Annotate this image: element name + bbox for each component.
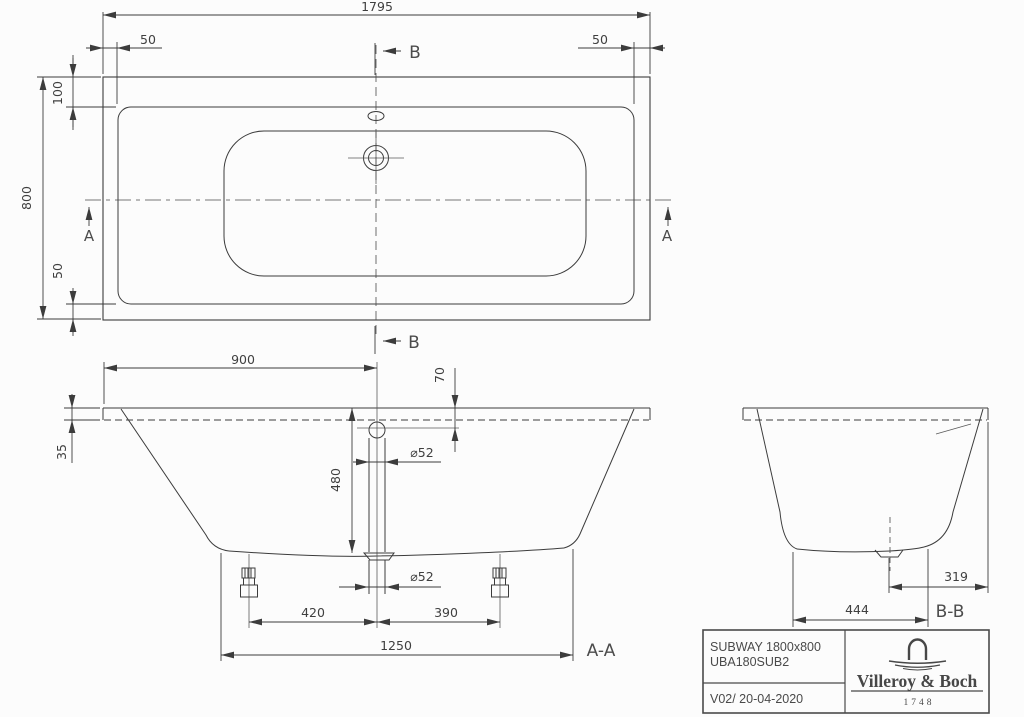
dim-overflow-depth-group: 70 — [432, 367, 455, 452]
dim-left-inset-group: 50 — [86, 32, 162, 104]
dim-overall-width: 800 — [19, 186, 34, 210]
dim-drain-center-to-edge: 319 — [944, 569, 968, 584]
section-aa-view: 900 70 480 ⌀52 35 — [54, 352, 650, 661]
section-marker-a-right: A — [662, 227, 673, 245]
tub-bottom — [229, 548, 564, 556]
article-number: UBA180SUB2 — [710, 655, 789, 669]
dim-left-foot-to-drain: 420 — [301, 605, 325, 620]
dim-right-inset: 50 — [592, 32, 608, 47]
section-label-aa: A-A — [587, 641, 616, 661]
dim-base-length: 1250 — [380, 638, 412, 653]
section-marker-b-bottom: B — [408, 333, 420, 353]
top-view-outline — [85, 45, 674, 338]
dim-right-inset-group: 50 — [578, 32, 665, 104]
dim-overflow-dia-group: ⌀52 — [353, 445, 441, 462]
section-label-bb: B-B — [936, 602, 965, 622]
dim-bottom-inset-group: 50 — [50, 263, 116, 336]
revision-date: V02/ 20-04-2020 — [710, 692, 803, 706]
top-view: 1795 50 50 100 800 — [19, 0, 674, 354]
dim-drain-to-right-foot: 390 — [434, 605, 458, 620]
right-wall-bb — [924, 409, 983, 547]
technical-drawing-page: 1795 50 50 100 800 — [0, 0, 1024, 717]
dim-overall-width-group: 800 — [19, 77, 101, 319]
dim-rim-edge-height: 35 — [54, 444, 69, 460]
dim-overflow-diameter: ⌀52 — [410, 445, 433, 460]
brand-name: Villeroy & Boch — [857, 671, 978, 691]
dim-drain-diameter: ⌀52 — [410, 569, 433, 584]
dim-overall-length: 1795 — [361, 0, 393, 14]
dim-drain-from-left: 900 — [231, 352, 255, 367]
wall-marking — [936, 424, 971, 434]
right-wall — [564, 409, 634, 548]
left-wall — [121, 409, 229, 551]
left-wall-bb — [757, 409, 797, 549]
dim-overall-length-group: 1795 — [103, 0, 650, 74]
tub-outer-edge — [103, 77, 650, 320]
dim-left-inset: 50 — [140, 32, 156, 47]
foot-right — [492, 554, 509, 628]
section-marker-a-left: A — [84, 227, 95, 245]
section-marker-b-top: B — [409, 43, 421, 63]
brand-founding-year: 1748 — [904, 698, 935, 708]
dim-top-inset: 100 — [50, 81, 65, 105]
dim-base-width-group: 444 — [793, 549, 928, 627]
product-name: SUBWAY 1800x800 — [710, 640, 821, 654]
dim-rim-height-group: 35 — [54, 394, 100, 463]
section-aa-outline — [103, 362, 650, 628]
dim-base-length-group: 1250 — [221, 549, 573, 661]
tub-bottom-bb — [797, 547, 924, 552]
dim-drain-from-left-group: 900 — [104, 352, 377, 404]
dim-drain-dia-group: ⌀52 — [339, 569, 441, 587]
dim-base-width: 444 — [845, 602, 869, 617]
dim-overflow-depth: 70 — [432, 367, 447, 383]
dim-feet-group: 420 390 — [249, 605, 500, 622]
title-block: SUBWAY 1800x800 UBA180SUB2 V02/ 20-04-20… — [703, 630, 989, 713]
section-markers: A A B B — [84, 43, 673, 354]
technical-drawing-canvas: 1795 50 50 100 800 — [0, 0, 1024, 717]
section-bb-outline — [743, 408, 988, 571]
dim-depth-group: 480 — [328, 408, 352, 553]
foot-left — [241, 554, 258, 628]
dim-inner-depth: 480 — [328, 468, 343, 492]
section-bb-view: 319 444 B-B — [743, 408, 988, 627]
tub-basin-edge — [224, 131, 586, 276]
dim-bottom-inset: 50 — [50, 263, 65, 279]
dim-drain-offset-group: 319 — [889, 422, 988, 593]
dim-top-inset-group: 100 — [50, 55, 116, 130]
